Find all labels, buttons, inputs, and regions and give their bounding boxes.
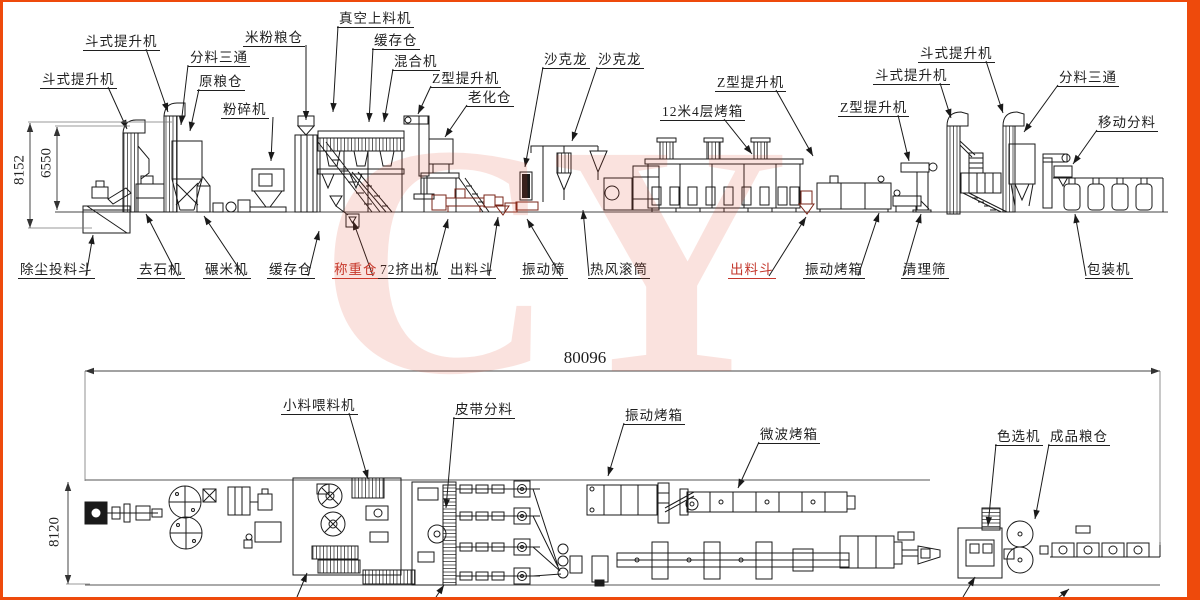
- z-elevator-2: [901, 163, 937, 212]
- vibrating-oven-plan: [587, 485, 657, 515]
- branch-lines: [456, 481, 608, 586]
- cleaning-sieve: [893, 190, 929, 212]
- rice-flour-silo-tower: [295, 116, 317, 212]
- plan-view: [85, 478, 1160, 586]
- mixing-platform: [318, 131, 404, 227]
- aging-bin: [421, 139, 489, 212]
- bucket-elevator-right-1: [947, 112, 1007, 214]
- microwave-oven-plan: [680, 489, 855, 515]
- mixing-tanks: [169, 486, 216, 549]
- blower-unit: [213, 200, 250, 212]
- drive-motor: [85, 502, 162, 524]
- cooling-conveyor-plan: [617, 542, 849, 579]
- destoner-machine: [136, 176, 164, 212]
- rice-mill-machine: [197, 177, 210, 212]
- packing-machine-row: [1053, 178, 1163, 212]
- oven-12m-4layer: [645, 138, 803, 212]
- output-row-plan: [898, 526, 1160, 557]
- hot-air-drum: [604, 166, 659, 210]
- drum-segment-plan: [840, 536, 940, 568]
- vibrating-oven-top: [817, 176, 891, 212]
- color-sorter-plan: [958, 508, 1002, 578]
- mixer-platform-plan: [293, 478, 401, 575]
- diagram-canvas: [0, 0, 1200, 600]
- plan-outline: [85, 480, 1160, 585]
- vibrating-sieve-unit: [520, 172, 532, 200]
- discharge-hopper-2: [799, 191, 814, 214]
- drawing-sheet: 斗式提升机斗式提升机分料三通原粮仓粉碎机米粉粮仓真空上料机缓存仓混合机Z型提升机…: [0, 0, 1200, 600]
- control-panels: [228, 487, 281, 548]
- pulverizer-machine: [250, 169, 286, 212]
- elevation-view: [55, 103, 1168, 233]
- cyclone-1: [531, 146, 571, 202]
- finished-grain-bins-plan: [1004, 521, 1048, 573]
- transfer-belt-plan: [658, 483, 698, 523]
